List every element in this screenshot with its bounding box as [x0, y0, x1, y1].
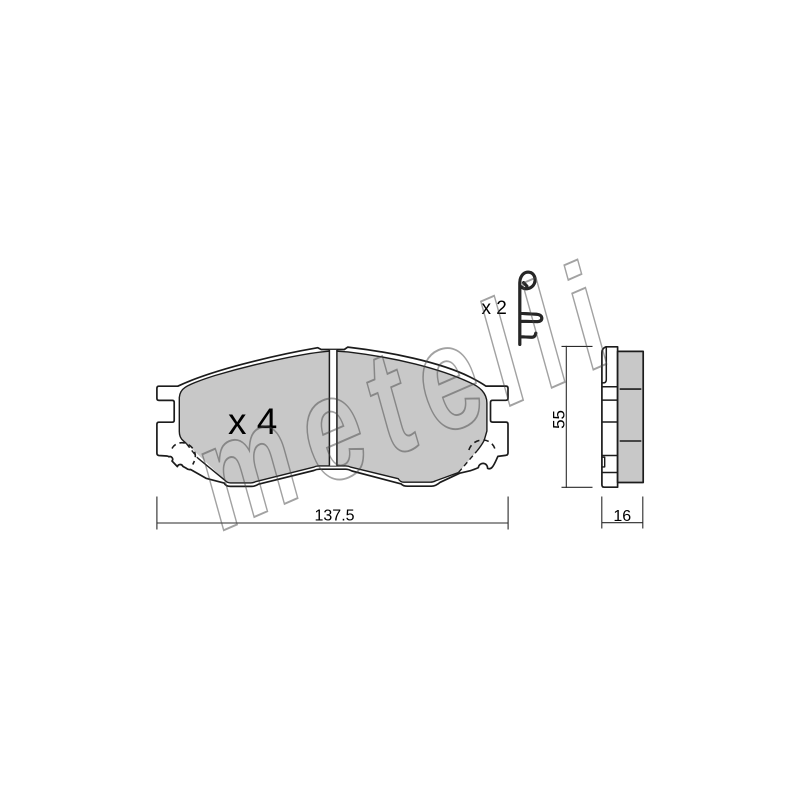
svg-text:metelli: metelli	[169, 230, 646, 560]
svg-text:16: 16	[613, 508, 631, 525]
